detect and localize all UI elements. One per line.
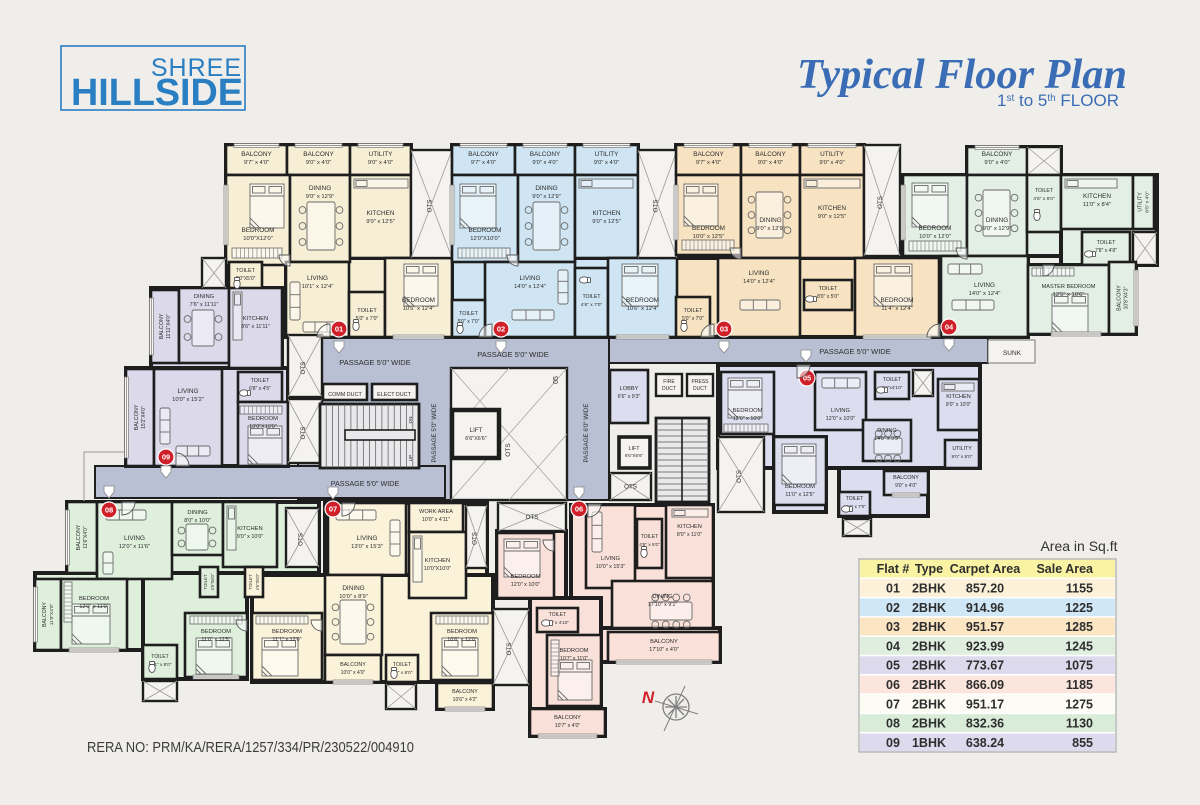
svg-text:1075: 1075 [1065,659,1093,673]
svg-text:17'10" x 4'0": 17'10" x 4'0" [649,647,679,653]
svg-text:SUNK: SUNK [1003,350,1022,357]
svg-text:OTS: OTS [298,533,305,546]
svg-text:FIRE: FIRE [663,379,675,385]
svg-text:OTS: OTS [300,427,307,440]
svg-text:BALCONY: BALCONY [159,313,165,339]
svg-text:TOILET: TOILET [641,534,658,540]
svg-text:BEDROOM: BEDROOM [447,629,477,635]
svg-text:09: 09 [886,736,900,750]
svg-text:ELECT DUCT: ELECT DUCT [377,392,411,398]
svg-text:6'6"X6'6": 6'6"X6'6" [465,436,487,442]
svg-text:TOILET: TOILET [251,378,270,384]
svg-text:07: 07 [329,505,337,514]
svg-text:DINING: DINING [652,594,673,600]
svg-text:BEDROOM: BEDROOM [468,227,501,234]
svg-text:9'0" x 12'5": 9'0" x 12'5" [592,219,621,225]
svg-text:TOILET: TOILET [248,574,253,590]
svg-text:PASSAGE 5'0" WIDE: PASSAGE 5'0" WIDE [477,350,548,359]
svg-text:1BHK: 1BHK [912,736,946,750]
svg-text:TOILET: TOILET [151,654,168,660]
svg-text:BALCONY: BALCONY [755,151,786,158]
svg-text:LIVING: LIVING [831,408,850,414]
svg-text:9'0" x 12'9": 9'0" x 12'9" [306,194,335,200]
svg-text:LIVING: LIVING [601,556,620,562]
svg-text:BALCONY: BALCONY [554,715,581,721]
svg-text:OTS: OTS [877,196,884,209]
svg-text:10'0" x 4'11": 10'0" x 4'11" [422,517,450,523]
svg-text:09: 09 [162,453,170,462]
svg-text:03: 03 [720,325,728,334]
svg-text:9'0" x 12'9": 9'0" x 12'9" [983,226,1012,232]
svg-text:BEDROOM: BEDROOM [241,227,274,234]
svg-text:9'7" x 4'0": 9'7" x 4'0" [244,160,269,166]
svg-text:BALCONY: BALCONY [76,524,82,550]
svg-text:10'7" x 4'0": 10'7" x 4'0" [555,723,581,729]
svg-text:TOILET: TOILET [582,294,601,300]
svg-text:11'4" x 12'4": 11'4" x 12'4" [881,306,912,312]
svg-text:UTILITY: UTILITY [820,151,845,158]
svg-text:BEDROOM: BEDROOM [560,648,589,654]
svg-text:01: 01 [886,581,900,595]
svg-text:866.09: 866.09 [966,678,1004,692]
svg-text:PASSAGE 6'0" WIDE: PASSAGE 6'0" WIDE [583,404,590,463]
svg-text:13'0" x 15'3": 13'0" x 15'3" [351,544,383,550]
svg-text:8'0" x 10'0": 8'0" x 10'0" [184,518,211,524]
svg-text:KITCHEN: KITCHEN [243,316,268,322]
svg-text:832.36: 832.36 [966,717,1004,731]
svg-text:1285: 1285 [1065,620,1093,634]
svg-text:BEDROOM: BEDROOM [511,574,541,580]
svg-text:PRESS: PRESS [692,379,710,385]
svg-text:951.17: 951.17 [966,697,1004,711]
svg-text:10'1" x 12'4": 10'1" x 12'4" [302,284,334,290]
svg-text:DINING: DINING [535,185,557,192]
svg-text:BALCONY: BALCONY [693,151,724,158]
svg-text:07: 07 [886,697,900,711]
svg-text:11'0" x 8'4": 11'0" x 8'4" [1083,202,1111,208]
svg-text:11'11"X4'0": 11'11"X4'0" [166,314,172,339]
svg-text:TOILET: TOILET [1097,240,1116,246]
svg-text:RERA NO: PRM/KA/RERA/1257/334/: RERA NO: PRM/KA/RERA/1257/334/PR/230522/… [87,739,414,756]
svg-text:951.57: 951.57 [966,620,1004,634]
svg-text:10'0" x 12'5": 10'0" x 12'5" [693,234,725,240]
svg-text:10'5" x 12'4": 10'5" x 12'4" [403,306,435,312]
svg-text:04: 04 [886,639,900,653]
svg-text:11'0"X4'0": 11'0"X4'0" [49,603,55,625]
svg-text:BEDROOM: BEDROOM [272,629,302,635]
svg-text:BALCONY: BALCONY [134,404,140,430]
svg-text:9'0" x 4'0": 9'0" x 4'0" [895,483,917,489]
svg-text:TOILET: TOILET [549,612,566,618]
svg-text:DINING: DINING [194,294,215,300]
svg-text:10'6" x 12'4": 10'6" x 12'4" [627,306,659,312]
svg-text:10'0" x 4'0": 10'0" x 4'0" [341,670,366,676]
svg-text:BEDROOM: BEDROOM [785,484,815,490]
svg-text:10'0" x 8'9": 10'0" x 8'9" [339,594,368,600]
svg-text:OTS: OTS [653,200,660,213]
svg-text:DINING: DINING [309,185,331,192]
svg-text:N: N [642,688,655,707]
svg-text:BALCONY: BALCONY [468,151,499,158]
svg-text:BALCONY: BALCONY [42,602,48,627]
svg-text:DN: DN [408,416,414,423]
svg-text:DINING: DINING [342,585,364,592]
svg-text:1155: 1155 [1066,581,1093,595]
svg-text:KITCHEN: KITCHEN [946,394,971,400]
svg-text:12'0" x 10'0": 12'0" x 10'0" [511,582,541,588]
svg-text:11'6"X4'0": 11'6"X4'0" [83,526,89,549]
svg-text:9'0" x 10'0": 9'0" x 10'0" [237,534,264,540]
svg-text:KITCHEN: KITCHEN [366,210,394,217]
svg-text:UTILITY: UTILITY [1138,192,1144,212]
svg-text:2BHK: 2BHK [912,678,946,692]
svg-text:UTILITY: UTILITY [595,151,620,158]
svg-text:9'0" x 12'5": 9'0" x 12'5" [818,214,847,220]
svg-text:BEDROOM: BEDROOM [201,629,231,635]
svg-text:9'7" x 4'0": 9'7" x 4'0" [471,160,496,166]
svg-text:BEDROOM: BEDROOM [692,225,725,232]
svg-text:4'6" x 7'0": 4'6" x 7'0" [581,302,603,308]
svg-text:9'0" x 5'0": 9'0" x 5'0" [952,454,973,460]
svg-text:2BHK: 2BHK [912,659,946,673]
svg-text:OTS: OTS [506,643,513,656]
svg-text:1130: 1130 [1066,717,1093,731]
svg-text:11'0" x 12'5": 11'0" x 12'5" [201,637,230,643]
svg-text:1275: 1275 [1065,697,1093,711]
svg-text:11'1" x 12'0": 11'1" x 12'0" [272,637,301,643]
svg-text:9'0" x 4'0": 9'0" x 4'0" [306,160,331,166]
svg-text:6'6" x 9'3": 6'6" x 9'3" [618,394,641,400]
svg-text:UTILITY: UTILITY [952,446,972,452]
svg-text:2BHK: 2BHK [912,581,946,595]
svg-text:TOILET: TOILET [203,574,208,590]
svg-text:14'8" x 9'9": 14'8" x 9'9" [874,436,900,442]
svg-text:KITCHEN: KITCHEN [425,558,450,564]
svg-text:KITCHEN: KITCHEN [237,526,262,532]
svg-text:8'0" x 5'0": 8'0" x 5'0" [817,294,839,300]
svg-text:OTS: OTS [505,443,512,457]
svg-text:LIFT: LIFT [470,427,483,434]
svg-text:1245: 1245 [1065,639,1093,653]
svg-text:2BHK: 2BHK [912,620,946,634]
svg-text:2BHK: 2BHK [912,601,946,615]
svg-text:BALCONY: BALCONY [982,151,1013,158]
svg-text:BALCONY: BALCONY [303,151,334,158]
svg-text:9'0" x 12'9": 9'0" x 12'9" [532,194,561,200]
svg-text:12'0"X10'0": 12'0"X10'0" [470,236,500,242]
svg-text:923.99: 923.99 [966,639,1004,653]
svg-text:02: 02 [497,325,505,334]
svg-text:DUCT: DUCT [693,386,707,392]
svg-text:1st to 5th FLOOR: 1st to 5th FLOOR [997,91,1119,110]
svg-text:TOILET: TOILET [459,311,478,317]
svg-text:PASSAGE 5'0" WIDE: PASSAGE 5'0" WIDE [331,479,400,488]
svg-text:DINING: DINING [759,217,781,224]
svg-text:DINING: DINING [877,428,897,434]
svg-text:9'0" x 4'0": 9'0" x 4'0" [368,160,393,166]
svg-text:TOILET: TOILET [846,496,863,502]
svg-text:Sale Area: Sale Area [1036,562,1094,576]
svg-text:9'7" x 4'0": 9'7" x 4'0" [696,160,721,166]
svg-text:UP: UP [408,455,414,462]
svg-text:BALCONY: BALCONY [1117,285,1123,311]
svg-text:05: 05 [886,659,900,673]
svg-text:TOILET: TOILET [236,268,255,274]
svg-text:LIVING: LIVING [749,270,770,277]
svg-text:2BHK: 2BHK [912,639,946,653]
svg-text:OTS: OTS [300,362,307,375]
svg-text:BEDROOM: BEDROOM [880,297,913,304]
svg-text:PASSAGE 5'0" WIDE: PASSAGE 5'0" WIDE [339,358,410,367]
svg-text:7'8" x 4'8": 7'8" x 4'8" [1095,248,1117,254]
svg-text:10'8"X4'3": 10'8"X4'3" [1124,286,1130,309]
svg-text:1225: 1225 [1065,601,1093,615]
svg-text:9'0" x 4'0": 9'0" x 4'0" [594,160,619,166]
svg-text:08: 08 [105,506,113,515]
svg-text:14'0" x 12'4": 14'0" x 12'4" [514,284,546,290]
svg-text:TOILET: TOILET [684,308,703,314]
svg-text:8'0" x 11'0": 8'0" x 11'0" [677,532,702,538]
svg-text:BEDROOM: BEDROOM [248,416,278,422]
svg-text:6'8" x 4'5": 6'8" x 4'5" [249,386,271,392]
svg-text:BEDROOM: BEDROOM [918,225,951,232]
svg-text:06: 06 [575,505,583,514]
svg-text:TOILET: TOILET [819,286,838,292]
svg-text:DUCT: DUCT [662,386,676,392]
svg-text:9'0" x 10'0": 9'0" x 10'0" [946,402,972,408]
svg-text:12'0" x 11'6": 12'0" x 11'6" [119,544,150,550]
svg-text:04: 04 [945,323,954,332]
svg-text:LOBBY: LOBBY [620,386,639,392]
svg-text:9'0" x 4'0": 9'0" x 4'0" [984,160,1009,166]
svg-text:12'0" x 10'0": 12'0" x 10'0" [733,416,763,422]
svg-text:BEDROOM: BEDROOM [733,408,763,414]
svg-text:LIVING: LIVING [178,388,199,395]
svg-text:OTS: OTS [624,484,637,491]
svg-text:BEDROOM: BEDROOM [79,596,109,602]
svg-text:4'6"X5'0": 4'6"X5'0" [210,573,215,590]
svg-text:BALCONY: BALCONY [650,639,678,645]
svg-text:LIVING: LIVING [357,535,378,542]
svg-text:10'0" x 12'0": 10'0" x 12'0" [919,234,951,240]
svg-text:17'10" x 9'1": 17'10" x 9'1" [648,602,678,608]
svg-text:14'0" x 12'4": 14'0" x 12'4" [969,291,1001,297]
svg-text:DINING: DINING [187,510,208,516]
svg-text:02: 02 [886,601,900,615]
svg-text:10'0" x 15'2": 10'0" x 15'2" [172,397,204,403]
svg-text:15'2"X4'0": 15'2"X4'0" [141,406,147,429]
svg-text:05: 05 [553,376,560,384]
svg-text:14'0" x 12'4": 14'0" x 12'4" [743,279,775,285]
svg-text:LIVING: LIVING [124,535,145,542]
svg-text:10'0"X10'0": 10'0"X10'0" [249,424,277,430]
svg-text:9'0" x 4'0": 9'0" x 4'0" [758,160,783,166]
svg-text:PASSAGE 5'0" WIDE: PASSAGE 5'0" WIDE [819,347,890,356]
svg-text:855: 855 [1072,736,1093,750]
svg-text:OTS: OTS [427,200,434,213]
svg-text:10'7" x 11'0": 10'7" x 11'0" [560,656,588,662]
svg-text:12'0" x 11'0": 12'0" x 11'0" [79,604,108,610]
svg-text:BALCONY: BALCONY [241,151,272,158]
svg-text:4'6" x 6'0": 4'6" x 6'0" [1033,196,1055,202]
svg-text:10'0" x 15'3": 10'0" x 15'3" [596,564,626,570]
svg-text:Flat #: Flat # [877,562,910,576]
svg-text:638.24: 638.24 [966,736,1004,750]
svg-text:LIVING: LIVING [307,275,328,282]
svg-text:OTS: OTS [736,470,743,483]
svg-text:9'0" x 12'5": 9'0" x 12'5" [366,219,395,225]
svg-text:08: 08 [886,717,900,731]
svg-text:8'5" x 4'0": 8'5" x 4'0" [1145,191,1151,213]
svg-text:BALCONY: BALCONY [530,151,561,158]
svg-text:773.67: 773.67 [966,659,1004,673]
svg-text:9'0" x 4'0": 9'0" x 4'0" [819,160,844,166]
svg-text:10'0"X12'0": 10'0"X12'0" [243,236,273,242]
svg-text:Area in Sq.ft: Area in Sq.ft [1040,538,1117,554]
svg-text:BEDROOM: BEDROOM [402,297,435,304]
svg-text:COMM DUCT: COMM DUCT [328,392,362,398]
svg-text:10'6" x 12'0": 10'6" x 12'0" [447,637,477,643]
svg-text:10'0"X10'0": 10'0"X10'0" [424,566,452,572]
svg-text:06: 06 [886,678,900,692]
svg-text:TOILET: TOILET [1035,188,1054,194]
svg-text:KITCHEN: KITCHEN [592,210,620,217]
svg-text:KITCHEN: KITCHEN [677,524,702,530]
svg-text:OTS: OTS [526,514,539,521]
svg-text:9'0" x 12'9": 9'0" x 12'9" [756,226,785,232]
svg-text:OTS: OTS [472,532,479,545]
svg-text:KITCHEN: KITCHEN [818,205,846,212]
svg-text:TOILET: TOILET [357,308,377,314]
svg-text:01: 01 [335,325,343,334]
svg-text:12'0" x 10'0": 12'0" x 10'0" [826,416,856,422]
svg-text:BEDROOM: BEDROOM [626,297,659,304]
svg-text:BALCONY: BALCONY [452,689,478,695]
svg-text:HILLSIDE: HILLSIDE [71,72,243,114]
svg-text:BALCONY: BALCONY [893,475,919,481]
svg-text:2BHK: 2BHK [912,697,946,711]
svg-text:5'0" x 7'0": 5'0" x 7'0" [356,316,379,322]
svg-text:914.96: 914.96 [966,601,1004,615]
svg-text:4'6"X5'0": 4'6"X5'0" [255,573,260,590]
svg-text:8'6" x 11'11": 8'6" x 11'11" [241,324,270,330]
svg-text:11'0" x 12'5": 11'0" x 12'5" [785,492,814,498]
svg-text:Carpet Area: Carpet Area [950,562,1021,576]
svg-text:DINING: DINING [986,217,1008,224]
svg-text:10'6" x 4'2": 10'6" x 4'2" [453,697,478,703]
svg-text:LIFT: LIFT [628,446,640,452]
svg-text:Type: Type [915,562,943,576]
svg-text:2BHK: 2BHK [912,717,946,731]
svg-text:LIVING: LIVING [520,275,541,282]
svg-text:857.20: 857.20 [966,581,1004,595]
svg-text:WORK AREA: WORK AREA [419,509,453,515]
svg-text:PASSAGE 5'0" WIDE: PASSAGE 5'0" WIDE [431,404,438,463]
svg-text:03: 03 [886,620,900,634]
svg-text:9'0" x 4'0": 9'0" x 4'0" [532,160,557,166]
svg-text:1185: 1185 [1066,678,1093,692]
svg-text:LIVING: LIVING [974,282,995,289]
svg-text:UTILITY: UTILITY [369,151,394,158]
svg-text:6'6"X6'6": 6'6"X6'6" [625,453,644,458]
svg-text:BALCONY: BALCONY [340,662,366,668]
svg-text:TOILET: TOILET [883,377,902,383]
svg-text:7'6" x 11'11": 7'6" x 11'11" [190,302,219,308]
svg-text:MASTER BEDROOM: MASTER BEDROOM [1042,284,1096,290]
svg-text:12'5" x 10'6": 12'5" x 10'6" [1053,292,1085,298]
svg-text:KITCHEN: KITCHEN [1083,193,1111,200]
